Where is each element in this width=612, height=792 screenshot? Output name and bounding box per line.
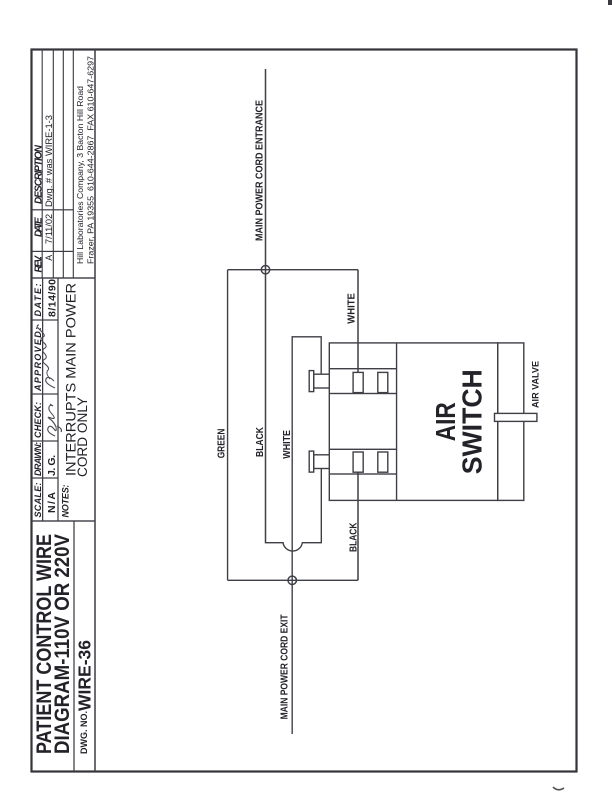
svg-text:GREEN: GREEN	[215, 429, 227, 459]
svg-text:DATE: DATE	[34, 217, 45, 237]
svg-text:REV.: REV.	[34, 255, 45, 273]
svg-text:J. G.: J. G.	[46, 455, 58, 476]
svg-text:7/11/02: 7/11/02	[44, 214, 54, 244]
svg-text:NOTES:: NOTES:	[61, 485, 71, 518]
svg-text:CHECK:: CHECK:	[33, 402, 43, 438]
svg-text:APPROVED:: APPROVED:	[33, 327, 43, 392]
svg-text:WHITE: WHITE	[281, 430, 293, 459]
svg-text:Frazer, PA 19355 610-644-2867: Frazer, PA 19355 610-644-2867 FAX 610-64…	[86, 56, 96, 264]
svg-text:BLACK: BLACK	[254, 427, 266, 457]
svg-text:A: A	[44, 255, 54, 261]
svg-text:WIRE-36: WIRE-36	[75, 640, 95, 711]
svg-text:Hill Laboratories Company, 3 B: Hill Laboratories Company, 3 Bacton Hill…	[75, 86, 85, 264]
svg-text:AIR VALVE: AIR VALVE	[530, 361, 541, 408]
svg-text:MAIN POWER CORD EXIT: MAIN POWER CORD EXIT	[280, 614, 291, 719]
svg-text:8/14/90: 8/14/90	[47, 279, 59, 317]
svg-text:MAIN POWER CORD ENTRANCE: MAIN POWER CORD ENTRANCE	[255, 100, 266, 241]
svg-text:DIAGRAM-110V OR 220V: DIAGRAM-110V OR 220V	[51, 534, 74, 754]
svg-text:DRAWN:: DRAWN:	[33, 442, 43, 476]
svg-text:CORD ONLY: CORD ONLY	[74, 396, 90, 477]
svg-text:N/A: N/A	[46, 492, 58, 513]
svg-text:DESCRIPTION: DESCRIPTION	[34, 144, 45, 204]
svg-text:Dwg. # was WIRE-1-3: Dwg. # was WIRE-1-3	[44, 115, 54, 207]
svg-text:BLACK: BLACK	[348, 522, 360, 552]
svg-text:WHITE: WHITE	[345, 293, 357, 324]
svg-text:DATE:: DATE:	[33, 284, 43, 317]
svg-text:SCALE:: SCALE:	[33, 483, 43, 518]
svg-text:SWITCH: SWITCH	[456, 369, 487, 474]
svg-text:DWG. NO.: DWG. NO.	[79, 711, 89, 754]
